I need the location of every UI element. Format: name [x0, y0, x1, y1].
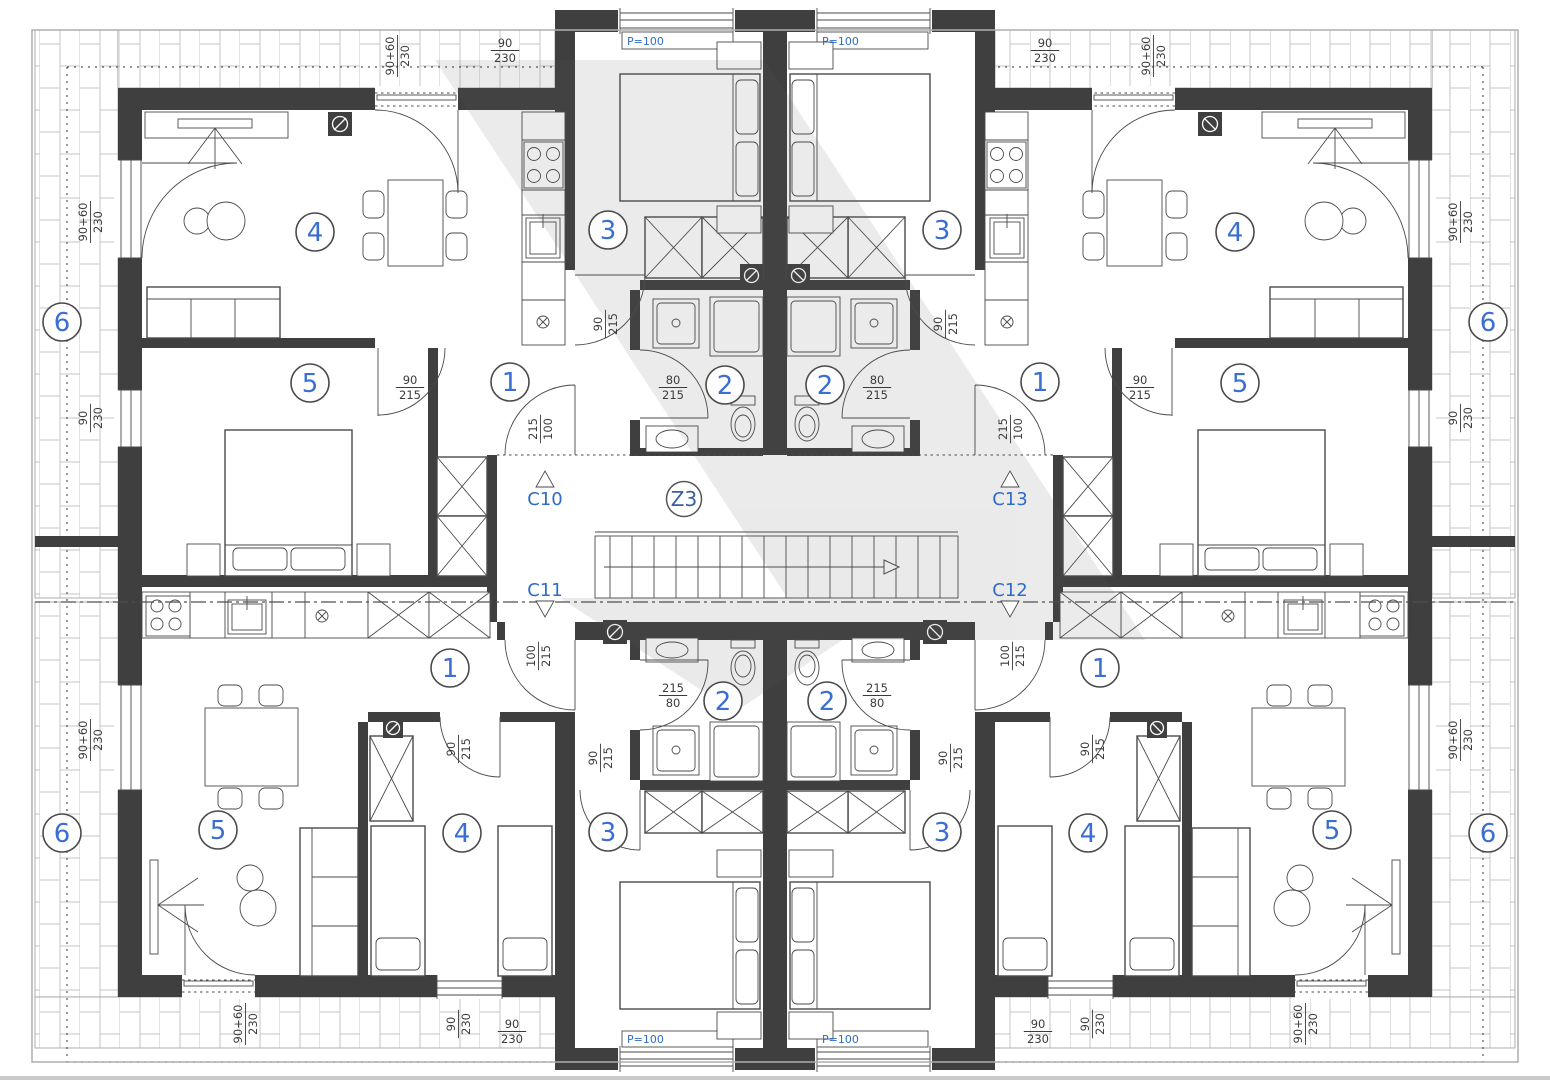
stairwell-label: Z3 [671, 487, 697, 511]
svg-text:215: 215 [946, 313, 960, 335]
svg-text:C10: C10 [527, 489, 562, 510]
svg-text:215: 215 [866, 388, 888, 402]
svg-text:4: 4 [1080, 819, 1097, 849]
parapet-label: P=100 [627, 35, 664, 48]
svg-text:215: 215 [951, 747, 965, 769]
svg-text:3: 3 [600, 216, 617, 246]
svg-text:5: 5 [302, 369, 319, 399]
kitchen-bottom [142, 592, 490, 638]
svg-text:90: 90 [586, 751, 600, 766]
svg-text:100: 100 [1011, 418, 1025, 440]
svg-text:215: 215 [1093, 738, 1107, 760]
room-marker: 4 [296, 213, 334, 251]
svg-text:90: 90 [1031, 1017, 1046, 1031]
svg-text:6: 6 [1480, 819, 1497, 849]
svg-text:230: 230 [91, 407, 105, 429]
svg-text:1: 1 [442, 654, 459, 684]
svg-text:100: 100 [524, 645, 538, 667]
svg-text:1: 1 [1032, 368, 1049, 398]
svg-text:230: 230 [1034, 51, 1056, 65]
floor-plan-canvas: Z3 C10 C11 C12 C13 P=100 P=100 P=100 P=1… [0, 0, 1550, 1080]
svg-text:90+60: 90+60 [383, 37, 397, 76]
svg-text:215: 215 [539, 645, 553, 667]
svg-text:90: 90 [931, 317, 945, 332]
room-marker: 6 [43, 303, 81, 341]
svg-text:215: 215 [996, 418, 1010, 440]
room-marker: 1 [1021, 363, 1059, 401]
svg-text:230: 230 [1154, 45, 1168, 67]
room-marker: 6 [1469, 814, 1507, 852]
svg-text:230: 230 [1461, 407, 1475, 429]
svg-text:90+60: 90+60 [76, 203, 90, 242]
room-marker: 5 [1313, 811, 1351, 849]
svg-text:80: 80 [870, 373, 885, 387]
svg-text:6: 6 [1480, 308, 1497, 338]
svg-text:230: 230 [1093, 1013, 1107, 1035]
svg-text:1: 1 [502, 368, 519, 398]
room-marker: 2 [706, 366, 744, 404]
parapet-label: P=100 [822, 1033, 859, 1046]
svg-text:2: 2 [817, 371, 834, 401]
room-marker: 3 [589, 211, 627, 249]
room-marker: 4 [1216, 213, 1254, 251]
svg-text:90: 90 [505, 1017, 520, 1031]
room-marker: 1 [431, 649, 469, 687]
svg-text:90: 90 [403, 373, 418, 387]
svg-text:90: 90 [936, 751, 950, 766]
svg-text:230: 230 [91, 211, 105, 233]
svg-text:2: 2 [717, 371, 734, 401]
room-marker: 5 [199, 811, 237, 849]
dimension-label: 100215 [524, 642, 553, 670]
svg-text:90+60: 90+60 [76, 721, 90, 760]
svg-text:230: 230 [246, 1013, 260, 1035]
svg-text:90: 90 [1078, 1017, 1092, 1032]
svg-text:230: 230 [1461, 211, 1475, 233]
dimension-label: 100215 [998, 642, 1027, 670]
room-marker: 3 [589, 813, 627, 851]
svg-text:90: 90 [1078, 742, 1092, 757]
parapet-label: P=100 [822, 35, 859, 48]
svg-text:215: 215 [526, 418, 540, 440]
svg-text:6: 6 [54, 308, 71, 338]
svg-text:3: 3 [600, 818, 617, 848]
dimension-label: 215100 [526, 415, 555, 443]
room-marker: 4 [443, 814, 481, 852]
svg-text:90+60: 90+60 [1446, 721, 1460, 760]
svg-text:230: 230 [1461, 729, 1475, 751]
svg-text:90: 90 [444, 1017, 458, 1032]
svg-text:4: 4 [1227, 218, 1244, 248]
svg-text:4: 4 [307, 218, 324, 248]
room-marker: 2 [704, 682, 742, 720]
parapet-label: P=100 [627, 1033, 664, 1046]
room-marker: 1 [491, 363, 529, 401]
svg-text:215: 215 [662, 681, 684, 695]
svg-text:215: 215 [1129, 388, 1151, 402]
svg-text:80: 80 [666, 373, 681, 387]
room-marker: 3 [923, 211, 961, 249]
svg-text:230: 230 [91, 729, 105, 751]
dimension-label: 215100 [996, 415, 1025, 443]
svg-text:230: 230 [494, 51, 516, 65]
room-marker: 5 [291, 364, 329, 402]
svg-text:3: 3 [934, 818, 951, 848]
svg-text:215: 215 [601, 747, 615, 769]
svg-text:100: 100 [541, 418, 555, 440]
svg-text:5: 5 [1232, 369, 1249, 399]
svg-text:2: 2 [715, 687, 732, 717]
svg-text:5: 5 [210, 816, 227, 846]
svg-text:230: 230 [459, 1013, 473, 1035]
svg-text:1: 1 [1092, 654, 1109, 684]
svg-text:90: 90 [444, 742, 458, 757]
svg-text:230: 230 [501, 1032, 523, 1046]
svg-text:C11: C11 [527, 580, 562, 601]
svg-text:90+60: 90+60 [231, 1005, 245, 1044]
svg-text:230: 230 [398, 45, 412, 67]
svg-text:215: 215 [459, 738, 473, 760]
room-marker: 4 [1069, 814, 1107, 852]
svg-text:80: 80 [870, 696, 885, 710]
svg-text:5: 5 [1324, 816, 1341, 846]
svg-text:100: 100 [998, 645, 1012, 667]
svg-text:215: 215 [399, 388, 421, 402]
room-marker: 6 [1469, 303, 1507, 341]
room-marker: 3 [923, 813, 961, 851]
svg-text:90: 90 [1038, 36, 1053, 50]
svg-text:215: 215 [866, 681, 888, 695]
svg-text:90: 90 [1446, 411, 1460, 426]
svg-text:4: 4 [454, 819, 471, 849]
svg-text:90: 90 [591, 317, 605, 332]
svg-text:90+60: 90+60 [1446, 203, 1460, 242]
svg-text:90+60: 90+60 [1139, 37, 1153, 76]
room-marker: 2 [806, 366, 844, 404]
svg-text:215: 215 [606, 313, 620, 335]
svg-text:90+60: 90+60 [1291, 1005, 1305, 1044]
room-marker: 2 [808, 682, 846, 720]
svg-text:230: 230 [1027, 1032, 1049, 1046]
room-marker: 1 [1081, 649, 1119, 687]
bottom-edge [0, 1076, 1550, 1080]
svg-text:C12: C12 [992, 580, 1027, 601]
svg-text:2: 2 [819, 687, 836, 717]
svg-text:90: 90 [76, 411, 90, 426]
svg-text:90: 90 [498, 36, 513, 50]
svg-text:80: 80 [666, 696, 681, 710]
svg-text:90: 90 [1133, 373, 1148, 387]
room-marker: 5 [1221, 364, 1259, 402]
svg-text:3: 3 [934, 216, 951, 246]
svg-text:215: 215 [662, 388, 684, 402]
svg-text:6: 6 [54, 819, 71, 849]
svg-text:C13: C13 [992, 489, 1027, 510]
room-marker: 6 [43, 814, 81, 852]
svg-text:230: 230 [1306, 1013, 1320, 1035]
floor-plan-page: Z3 C10 C11 C12 C13 P=100 P=100 P=100 P=1… [0, 0, 1550, 1080]
svg-text:215: 215 [1013, 645, 1027, 667]
